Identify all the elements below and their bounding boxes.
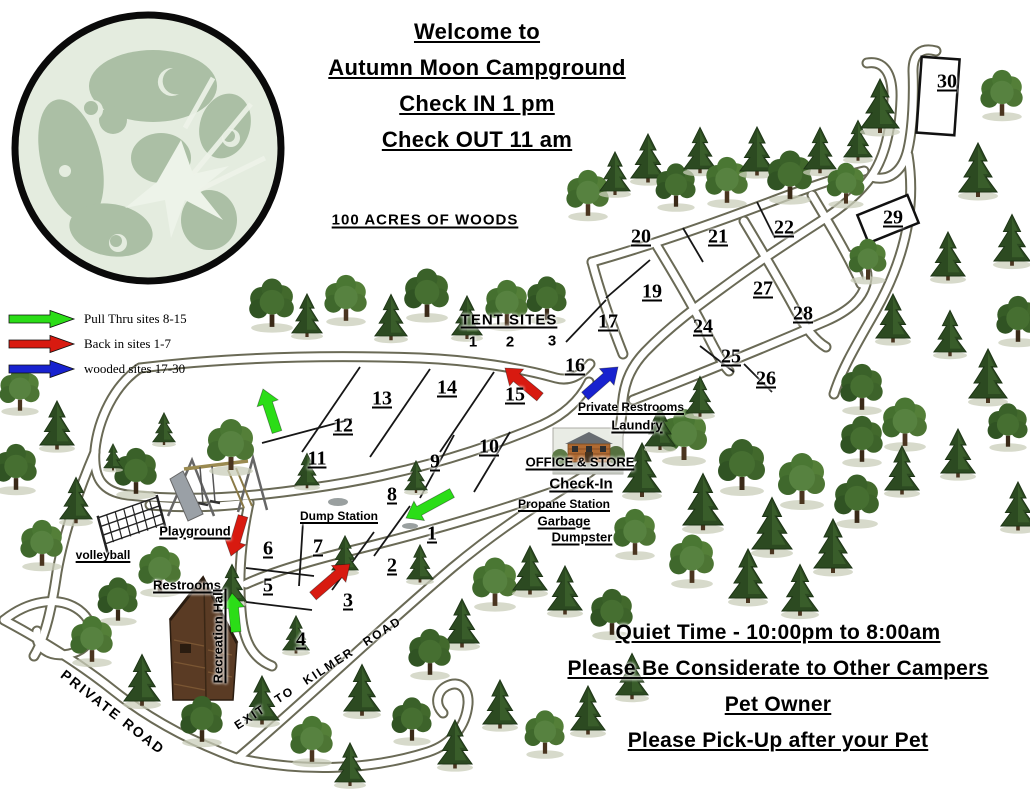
evergreen-tree-icon bbox=[884, 446, 920, 498]
campground-map: Welcome to Autumn Moon Campground Check … bbox=[0, 0, 1030, 790]
site-number-25: 25 bbox=[721, 346, 741, 369]
legend-label-wooded: wooded sites 17-30 bbox=[84, 361, 185, 377]
office-store-label: OFFICE & STORE bbox=[526, 455, 635, 470]
deciduous-tree-icon bbox=[778, 453, 825, 510]
laundry-label: Laundry bbox=[611, 418, 662, 433]
green-arrow-icon bbox=[8, 308, 78, 330]
site-number-4: 4 bbox=[296, 629, 306, 652]
deciduous-tree-icon bbox=[0, 444, 37, 495]
site-number-1: 1 bbox=[427, 523, 437, 546]
pet-pickup-notice: Please Pick-Up after your Pet bbox=[628, 729, 929, 753]
evergreen-tree-icon bbox=[512, 546, 548, 598]
road-path bbox=[657, 246, 729, 371]
recreation-hall-label: Recreation Hall bbox=[211, 589, 226, 684]
moon-logo bbox=[15, 15, 281, 281]
deciduous-tree-icon bbox=[718, 439, 765, 496]
site-number-15: 15 bbox=[505, 384, 525, 407]
woods-label: 100 ACRES OF WOODS bbox=[332, 212, 519, 229]
garbage-label: Garbage bbox=[538, 514, 591, 529]
evergreen-tree-icon bbox=[930, 232, 966, 284]
site-number-26: 26 bbox=[756, 368, 776, 391]
deciduous-tree-icon bbox=[290, 716, 332, 767]
deciduous-tree-icon bbox=[840, 416, 882, 467]
site-number-14: 14 bbox=[437, 377, 457, 400]
red-arrow-icon bbox=[8, 333, 78, 355]
check-in-label: Check-In bbox=[549, 476, 612, 493]
deciduous-tree-icon bbox=[472, 557, 517, 611]
title-welcome: Welcome to bbox=[414, 19, 540, 45]
evergreen-tree-icon bbox=[343, 664, 381, 719]
evergreen-tree-icon bbox=[103, 444, 123, 473]
evergreen-tree-icon bbox=[374, 294, 408, 343]
site-number-9: 9 bbox=[430, 451, 440, 474]
deciduous-tree-icon bbox=[408, 629, 450, 680]
playground-label: Playground bbox=[159, 524, 231, 539]
evergreen-tree-icon bbox=[682, 474, 724, 534]
site-number-22: 22 bbox=[774, 217, 794, 240]
evergreen-tree-icon bbox=[406, 545, 434, 585]
site-divider bbox=[299, 522, 303, 586]
site-number-27: 27 bbox=[753, 278, 773, 301]
evergreen-tree-icon bbox=[59, 477, 93, 526]
evergreen-tree-icon bbox=[933, 310, 967, 359]
deciduous-tree-icon bbox=[669, 534, 714, 588]
evergreen-tree-icon bbox=[291, 294, 323, 340]
site-30-outline bbox=[916, 57, 959, 135]
site-number-28: 28 bbox=[793, 303, 813, 326]
deciduous-tree-icon bbox=[324, 275, 366, 326]
evergreen-tree-icon bbox=[803, 127, 837, 176]
evergreen-tree-icon bbox=[547, 566, 583, 618]
evergreen-tree-icon bbox=[993, 214, 1030, 269]
site-divider bbox=[302, 367, 360, 452]
quiet-time-notice: Quiet Time - 10:00pm to 8:00am bbox=[616, 621, 941, 645]
deciduous-tree-icon bbox=[207, 419, 254, 476]
site-number-13: 13 bbox=[372, 388, 392, 411]
legend-row-back-in: Back in sites 1-7 bbox=[8, 331, 187, 356]
site-number-10: 10 bbox=[479, 436, 499, 459]
private-restrooms-label: Private Restrooms bbox=[578, 400, 684, 414]
dump-station-label: Dump Station bbox=[300, 509, 378, 523]
evergreen-tree-icon bbox=[968, 349, 1008, 407]
site-number-12: 12 bbox=[333, 415, 353, 438]
deciduous-tree-icon bbox=[996, 296, 1030, 347]
site-number-5: 5 bbox=[263, 575, 273, 598]
evergreen-tree-icon bbox=[152, 413, 176, 448]
evergreen-tree-icon bbox=[570, 686, 606, 738]
site-number-30: 30 bbox=[937, 71, 957, 94]
site-number-8: 8 bbox=[387, 484, 397, 507]
deciduous-tree-icon bbox=[98, 577, 138, 625]
legend-row-pull-thru: Pull Thru sites 8-15 bbox=[8, 306, 187, 331]
deciduous-tree-icon bbox=[404, 268, 449, 322]
tent-site-3: 3 bbox=[548, 333, 556, 350]
site-number-19: 19 bbox=[642, 281, 662, 304]
legend-row-wooded: wooded sites 17-30 bbox=[8, 356, 187, 381]
site-number-7: 7 bbox=[313, 536, 323, 559]
legend: Pull Thru sites 8-15 Back in sites 1-7 w… bbox=[8, 306, 187, 381]
deciduous-tree-icon bbox=[249, 278, 294, 332]
considerate-notice: Please Be Considerate to Other Campers bbox=[567, 657, 988, 681]
site-number-11: 11 bbox=[308, 448, 327, 471]
blue-arrow-icon bbox=[8, 358, 78, 380]
evergreen-tree-icon bbox=[1000, 482, 1030, 534]
site-number-21: 21 bbox=[708, 226, 728, 249]
tent-site-1: 1 bbox=[469, 334, 477, 351]
deciduous-tree-icon bbox=[392, 697, 432, 745]
deciduous-tree-icon bbox=[980, 70, 1022, 121]
deciduous-tree-icon bbox=[834, 474, 879, 528]
legend-label-pull-thru: Pull Thru sites 8-15 bbox=[84, 311, 187, 327]
evergreen-tree-icon bbox=[958, 143, 998, 201]
tent-sites-label: TENT SITES bbox=[461, 312, 558, 329]
title-check-out: Check OUT 11 am bbox=[382, 127, 572, 153]
site-number-2: 2 bbox=[387, 555, 397, 578]
legend-label-back-in: Back in sites 1-7 bbox=[84, 336, 171, 352]
evergreen-tree-icon bbox=[940, 429, 976, 481]
pet-owner-notice: Pet Owner bbox=[725, 693, 832, 717]
evergreen-tree-icon bbox=[123, 654, 161, 709]
propane-station-label: Propane Station bbox=[518, 497, 610, 511]
deciduous-tree-icon bbox=[882, 397, 927, 451]
title-campground: Autumn Moon Campground bbox=[328, 55, 625, 81]
site-number-6: 6 bbox=[263, 538, 273, 561]
dumpster-label: Dumpster bbox=[552, 530, 613, 545]
site-divider bbox=[374, 506, 410, 556]
site-divider bbox=[246, 602, 312, 610]
evergreen-tree-icon bbox=[39, 401, 75, 453]
site-number-3: 3 bbox=[343, 590, 353, 613]
volleyball-label: volleyball bbox=[76, 548, 131, 562]
site-number-16: 16 bbox=[565, 355, 585, 378]
deciduous-tree-icon bbox=[988, 403, 1028, 451]
deciduous-tree-icon bbox=[525, 710, 565, 758]
evergreen-tree-icon bbox=[482, 680, 518, 732]
site-number-29: 29 bbox=[883, 207, 903, 230]
site-number-20: 20 bbox=[631, 226, 651, 249]
title-check-in: Check IN 1 pm bbox=[399, 91, 555, 117]
road-path bbox=[592, 262, 623, 354]
tent-site-2: 2 bbox=[506, 334, 514, 351]
deciduous-tree-icon bbox=[613, 509, 655, 560]
evergreen-tree-icon bbox=[599, 152, 631, 198]
evergreen-tree-icon bbox=[728, 549, 768, 607]
green-route-arrow bbox=[253, 386, 288, 436]
site-number-24: 24 bbox=[693, 316, 713, 339]
site-number-17: 17 bbox=[598, 311, 618, 334]
site-divider bbox=[370, 369, 430, 457]
